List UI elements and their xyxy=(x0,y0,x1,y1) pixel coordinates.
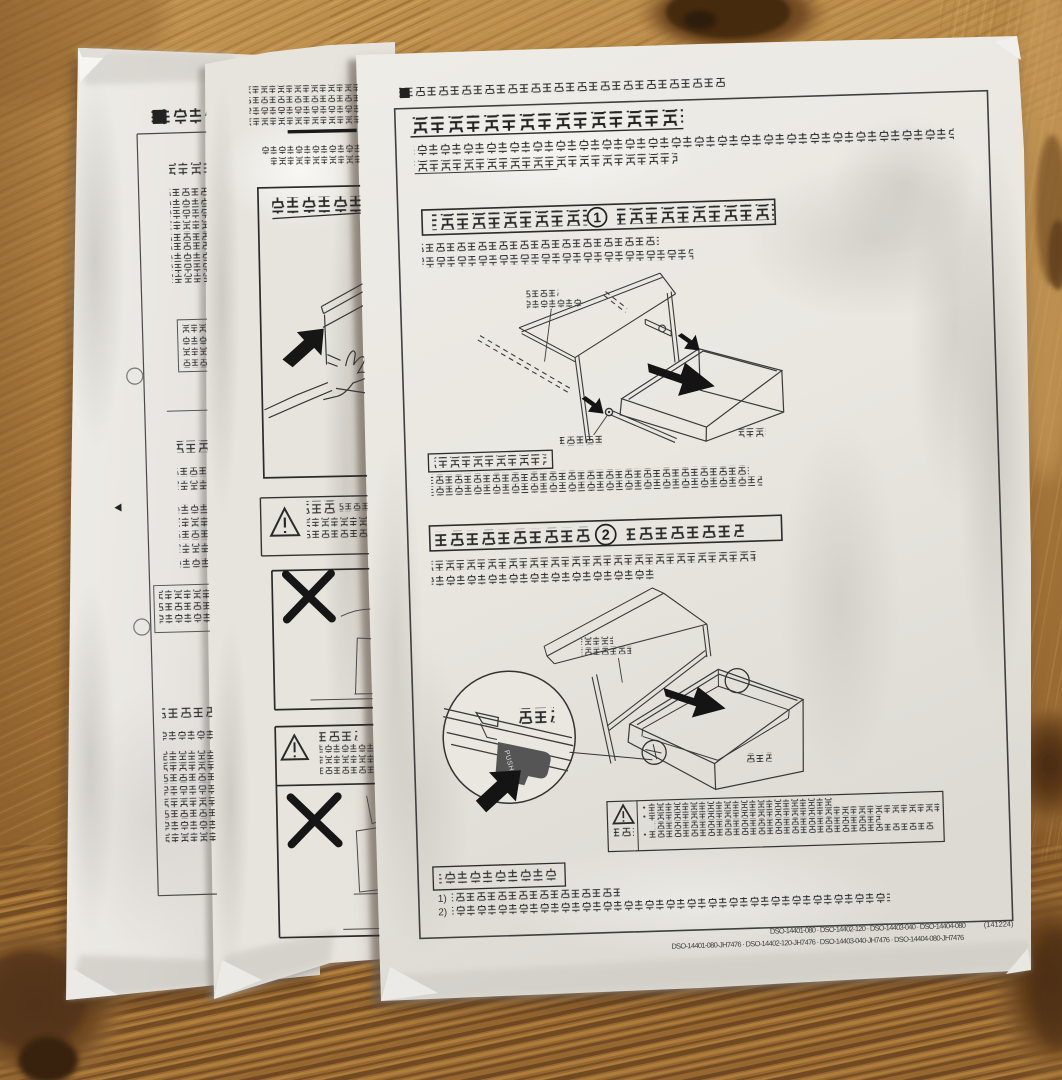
svg-text:2): 2) xyxy=(438,907,447,918)
svg-text:1: 1 xyxy=(593,209,601,225)
svg-text:(141224): (141224) xyxy=(984,919,1014,929)
svg-text:2: 2 xyxy=(602,527,611,543)
svg-text:1): 1) xyxy=(438,894,447,905)
